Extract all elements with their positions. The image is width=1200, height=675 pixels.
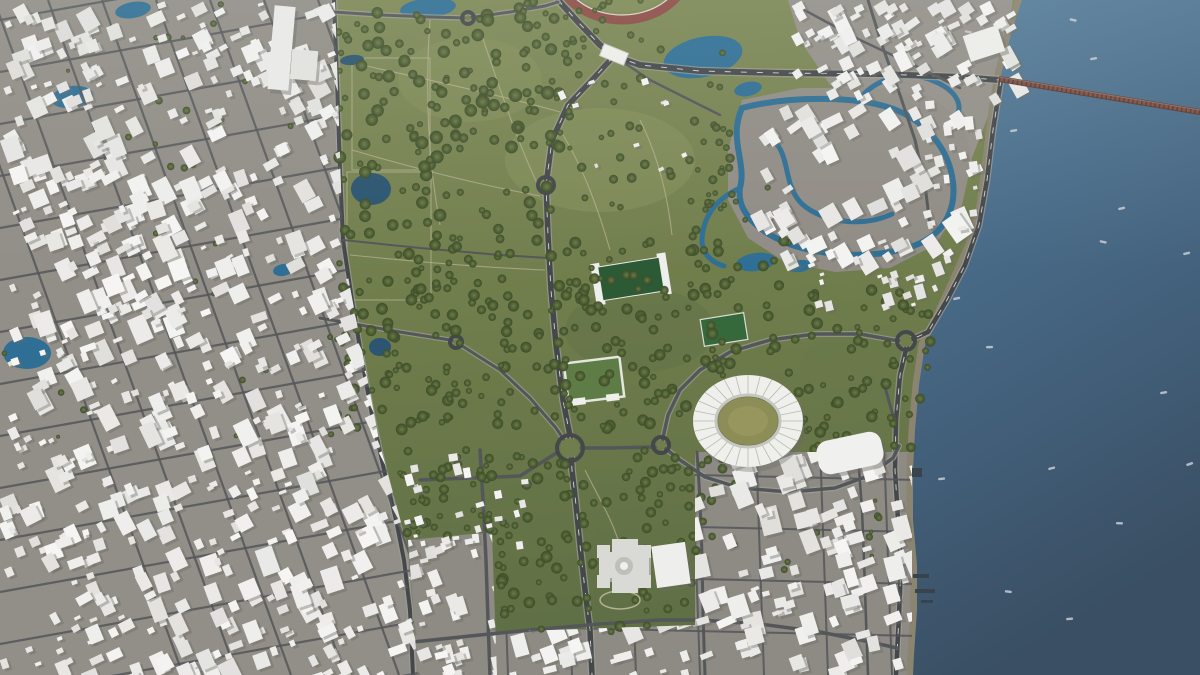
map-viewport[interactable] [0, 0, 1200, 675]
haze-overlay [0, 0, 1200, 675]
city-3d-map[interactable] [0, 0, 1200, 675]
